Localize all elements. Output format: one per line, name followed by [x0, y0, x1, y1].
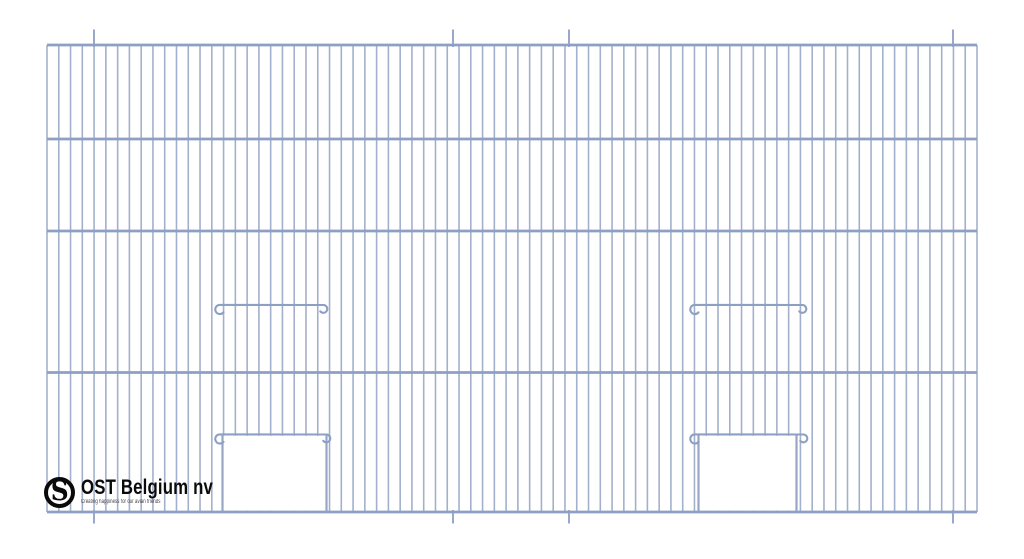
ost-belgium-logo: S OST Belgium nv Creating happiness for … — [44, 475, 246, 508]
brand-text-block: OST Belgium nv Creating happiness for ou… — [81, 479, 246, 505]
ost-emblem-icon: S — [44, 477, 75, 508]
brand-name: OST Belgium nv — [81, 479, 213, 497]
ost-monogram: S — [51, 478, 69, 505]
cage-front-panel-drawing: S OST Belgium nv Creating happiness for … — [0, 0, 1024, 559]
brand-tagline: Creating happiness for our avian friends — [81, 499, 200, 505]
